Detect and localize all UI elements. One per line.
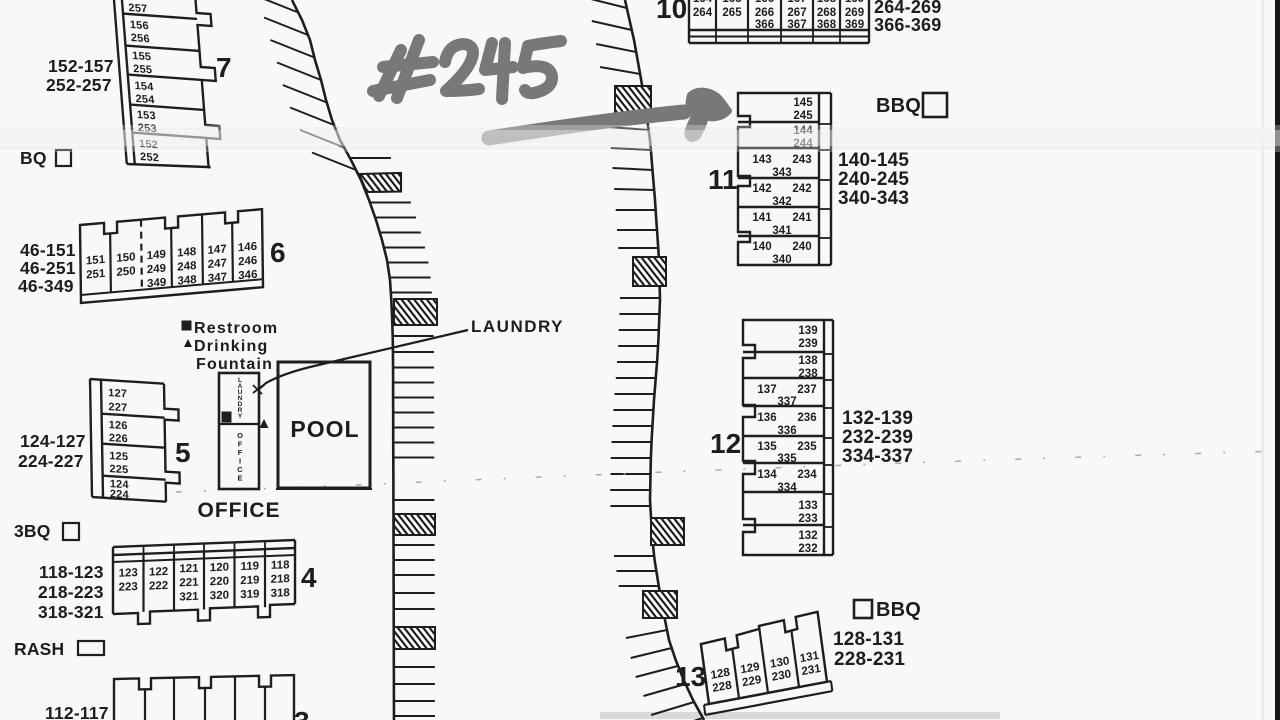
svg-text:Fountain: Fountain	[196, 356, 273, 373]
svg-text:153: 153	[136, 109, 156, 122]
svg-text:133: 133	[798, 500, 817, 512]
svg-text:119: 119	[241, 560, 260, 573]
svg-text:149: 149	[147, 249, 166, 263]
svg-text:366: 366	[755, 19, 774, 31]
svg-text:145: 145	[793, 97, 813, 109]
svg-text:346: 346	[238, 269, 257, 283]
svg-text:222: 222	[149, 580, 168, 593]
svg-text:250: 250	[116, 265, 135, 279]
svg-text:151: 151	[86, 254, 106, 268]
svg-text:367: 367	[787, 19, 806, 31]
svg-text:46-349: 46-349	[18, 276, 74, 296]
svg-text:138: 138	[798, 355, 818, 367]
svg-text:147: 147	[207, 243, 226, 257]
svg-text:135: 135	[757, 441, 777, 453]
svg-text:132: 132	[798, 530, 817, 542]
svg-text:268: 268	[817, 7, 837, 19]
svg-text:232-239: 232-239	[842, 427, 913, 448]
svg-text:347: 347	[208, 271, 227, 285]
svg-text:118: 118	[271, 559, 290, 572]
svg-text:348: 348	[177, 274, 197, 288]
svg-text:168: 168	[817, 0, 837, 5]
svg-text:137: 137	[757, 384, 776, 396]
svg-text:154: 154	[134, 80, 155, 93]
svg-text:140: 140	[752, 241, 771, 253]
svg-text:124-127: 124-127	[20, 431, 86, 451]
svg-text:LAUNDRY: LAUNDRY	[471, 317, 564, 336]
svg-text:164: 164	[693, 0, 713, 5]
svg-text:122: 122	[149, 566, 168, 579]
svg-text:228-231: 228-231	[834, 649, 905, 670]
svg-text:234: 234	[797, 469, 817, 481]
svg-text:46-251: 46-251	[20, 258, 76, 278]
svg-text:BBQ: BBQ	[876, 599, 921, 621]
svg-text:227: 227	[108, 401, 127, 414]
svg-text:148: 148	[177, 246, 197, 260]
svg-text:266: 266	[755, 7, 774, 19]
svg-text:265: 265	[722, 7, 742, 19]
svg-text:11: 11	[708, 164, 738, 195]
svg-text:255: 255	[133, 63, 153, 76]
svg-text:155: 155	[132, 50, 152, 63]
svg-text:248: 248	[177, 260, 197, 274]
svg-text:169: 169	[845, 0, 864, 5]
svg-text:241: 241	[792, 212, 812, 224]
svg-text:152-157: 152-157	[48, 56, 114, 76]
svg-text:256: 256	[130, 32, 150, 45]
svg-text:319: 319	[240, 588, 259, 601]
svg-text:269: 269	[845, 7, 864, 19]
svg-text:134: 134	[757, 469, 777, 481]
svg-text:254: 254	[135, 93, 156, 106]
svg-text:334: 334	[777, 482, 797, 494]
svg-text:369: 369	[845, 19, 864, 31]
svg-text:E: E	[237, 474, 242, 483]
svg-text:121: 121	[179, 563, 199, 576]
svg-text:46-151: 46-151	[20, 240, 76, 260]
svg-text:Restroom: Restroom	[194, 320, 278, 337]
svg-text:OFFICE: OFFICE	[198, 499, 281, 522]
svg-text:340-343: 340-343	[838, 188, 909, 209]
svg-text:223: 223	[119, 581, 138, 594]
svg-text:12: 12	[710, 428, 741, 459]
svg-text:247: 247	[208, 257, 227, 271]
svg-text:143: 143	[752, 154, 771, 166]
svg-text:141: 141	[752, 212, 772, 224]
svg-text:368: 368	[817, 19, 837, 31]
svg-text:POOL: POOL	[290, 416, 359, 442]
svg-text:238: 238	[798, 368, 818, 380]
svg-text:136: 136	[757, 412, 776, 424]
svg-text:366-369: 366-369	[874, 15, 941, 35]
svg-text:218: 218	[271, 573, 291, 586]
svg-text:123: 123	[119, 567, 138, 580]
svg-text:13: 13	[675, 661, 706, 692]
svg-text:165: 165	[722, 0, 742, 5]
svg-text:112-117: 112-117	[45, 703, 109, 720]
svg-text:340: 340	[772, 254, 791, 266]
svg-text:349: 349	[147, 277, 166, 291]
svg-text:BBQ: BBQ	[876, 95, 921, 117]
svg-text:236: 236	[797, 412, 816, 424]
svg-text:224-227: 224-227	[18, 451, 84, 471]
svg-text:225: 225	[109, 463, 128, 476]
svg-text:132-139: 132-139	[842, 408, 913, 429]
svg-text:RASH: RASH	[14, 639, 64, 659]
svg-text:240: 240	[792, 241, 811, 253]
svg-text:335: 335	[777, 453, 797, 465]
svg-text:139: 139	[798, 325, 817, 337]
svg-text:226: 226	[109, 432, 128, 445]
svg-text:120: 120	[210, 562, 229, 575]
svg-text:Drinking: Drinking	[194, 338, 269, 355]
svg-text:125: 125	[109, 450, 128, 463]
svg-text:336: 336	[777, 425, 796, 437]
svg-text:166: 166	[755, 0, 774, 5]
svg-text:167: 167	[787, 0, 806, 5]
svg-text:242: 242	[792, 183, 811, 195]
svg-text:140-145: 140-145	[838, 150, 909, 171]
svg-text:221: 221	[179, 577, 199, 590]
svg-text:337: 337	[777, 396, 796, 408]
svg-text:235: 235	[797, 441, 817, 453]
svg-text:156: 156	[129, 19, 149, 32]
svg-text:Y: Y	[238, 413, 243, 420]
svg-text:232: 232	[798, 543, 817, 555]
svg-text:220: 220	[210, 576, 229, 589]
svg-text:252-257: 252-257	[46, 75, 112, 95]
svg-text:3: 3	[294, 706, 310, 720]
svg-text:118-123: 118-123	[39, 562, 104, 582]
svg-text:321: 321	[179, 591, 199, 604]
svg-text:239: 239	[798, 338, 817, 350]
svg-text:3BQ: 3BQ	[14, 521, 51, 541]
svg-text:249: 249	[147, 263, 166, 277]
svg-text:150: 150	[116, 251, 135, 265]
svg-text:233: 233	[798, 513, 817, 525]
svg-text:343: 343	[772, 167, 791, 179]
svg-text:126: 126	[109, 419, 128, 432]
svg-text:128-131: 128-131	[833, 629, 904, 650]
svg-text:6: 6	[270, 237, 286, 268]
svg-text:267: 267	[787, 7, 806, 19]
svg-text:7: 7	[216, 52, 232, 83]
svg-text:245: 245	[793, 110, 813, 122]
svg-text:243: 243	[792, 154, 811, 166]
svg-text:10: 10	[656, 0, 687, 24]
svg-text:146: 146	[238, 241, 257, 255]
svg-text:219: 219	[240, 574, 259, 587]
svg-text:257: 257	[128, 2, 148, 15]
svg-text:318: 318	[271, 587, 291, 600]
svg-text:342: 342	[772, 196, 791, 208]
svg-text:264: 264	[693, 7, 713, 19]
svg-text:334-337: 334-337	[842, 446, 913, 467]
svg-text:251: 251	[86, 268, 106, 282]
svg-text:240-245: 240-245	[838, 169, 909, 190]
svg-text:142: 142	[752, 183, 771, 195]
svg-text:318-321: 318-321	[38, 602, 104, 622]
svg-text:320: 320	[210, 590, 229, 603]
svg-text:218-223: 218-223	[38, 582, 104, 602]
svg-text:5: 5	[175, 437, 191, 468]
svg-text:246: 246	[238, 255, 257, 269]
svg-text:252: 252	[140, 151, 160, 164]
svg-text:224: 224	[110, 488, 130, 501]
svg-text:4: 4	[301, 562, 317, 593]
svg-text:341: 341	[772, 225, 792, 237]
svg-text:127: 127	[108, 387, 127, 400]
svg-text:237: 237	[797, 384, 816, 396]
